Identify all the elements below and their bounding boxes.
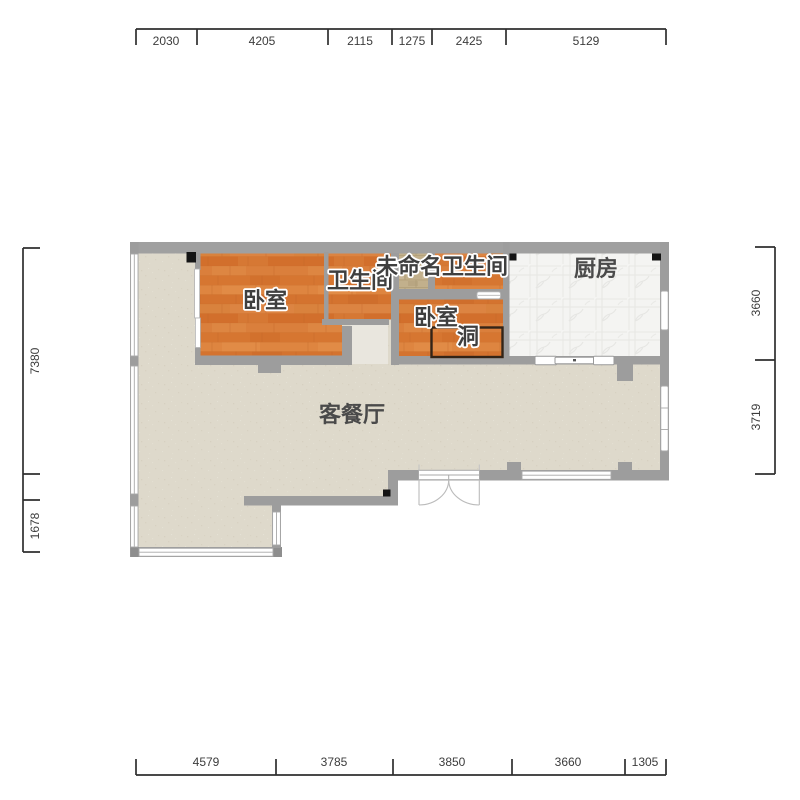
svg-text:卧室: 卧室 <box>243 288 287 313</box>
svg-text:3660: 3660 <box>555 755 582 769</box>
svg-text:5129: 5129 <box>573 34 600 48</box>
svg-text:3850: 3850 <box>439 755 466 769</box>
svg-text:7380: 7380 <box>28 347 42 374</box>
svg-text:4579: 4579 <box>193 755 220 769</box>
svg-text:3660: 3660 <box>749 289 763 316</box>
svg-text:4205: 4205 <box>249 34 276 48</box>
svg-text:3785: 3785 <box>321 755 348 769</box>
svg-text:卧室: 卧室 <box>414 305 458 330</box>
svg-text:1678: 1678 <box>28 512 42 539</box>
svg-text:2030: 2030 <box>153 34 180 48</box>
svg-text:3719: 3719 <box>749 403 763 430</box>
svg-text:1305: 1305 <box>632 755 659 769</box>
svg-text:1275: 1275 <box>399 34 426 48</box>
svg-text:未命名卫生间: 未命名卫生间 <box>376 254 508 279</box>
svg-text:客餐厅: 客餐厅 <box>319 402 385 427</box>
svg-text:洞: 洞 <box>457 324 479 349</box>
svg-text:厨房: 厨房 <box>574 256 618 281</box>
svg-text:2115: 2115 <box>347 34 373 48</box>
svg-text:2425: 2425 <box>456 34 483 48</box>
